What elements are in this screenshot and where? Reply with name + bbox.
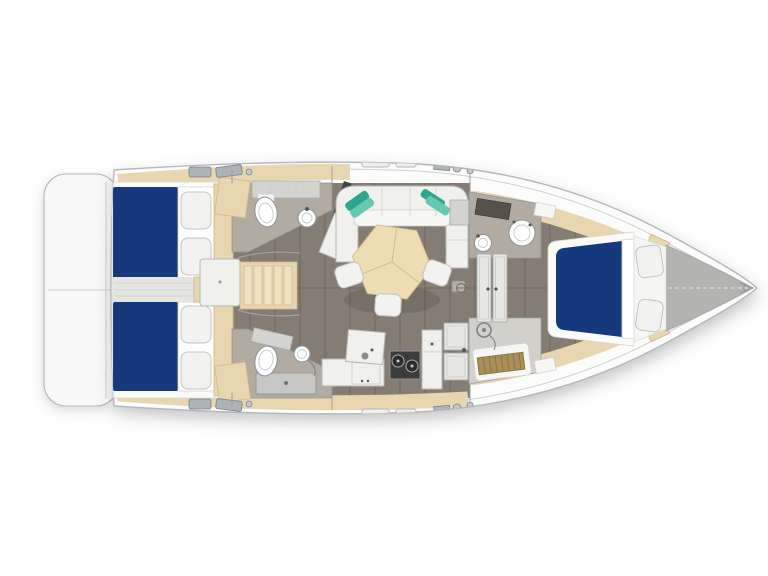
door-handle [462,348,466,352]
winch-drum-icon [246,169,252,175]
double-bed-mattress [113,302,178,391]
forward-shower-room [469,318,541,384]
engine-box-latch [219,281,222,284]
pillow [635,298,664,332]
mast-step [452,281,465,292]
louvered-door-upper [444,323,468,350]
stool [374,293,401,316]
faucet-icon [371,349,374,352]
pillow [635,244,664,278]
yacht-floorplan-page [0,0,768,576]
drain-icon [284,381,288,385]
island-berth-mattress [556,241,622,337]
winch-drum-icon [246,401,252,407]
winch-icon [189,167,211,177]
swim-platform [44,174,118,406]
pillow [181,192,211,229]
companionway [200,252,300,316]
galley-sink [362,353,369,360]
forward-head [469,192,541,258]
sink [298,209,316,227]
toilet [509,220,535,246]
bath-mat [215,177,251,218]
locker-column [422,330,442,389]
faucet-icon [476,234,480,238]
door-handle [486,287,489,290]
interior [112,158,753,418]
winch-icon [189,399,211,409]
louvered-door-lower [444,353,468,380]
chart-table [450,200,470,225]
pillow [181,306,211,343]
double-bed-mattress [113,187,178,278]
door-handle [494,287,497,290]
yacht-floorplan-svg [0,0,768,576]
bed-sheet [622,239,634,339]
faucet-icon [305,207,309,211]
aft-cabin-starboard [112,300,233,398]
winch-drum-icon [453,164,461,172]
pillow [181,352,211,389]
sink [294,346,310,362]
winch-drum-icon [453,404,461,412]
bath-mat [215,362,251,403]
